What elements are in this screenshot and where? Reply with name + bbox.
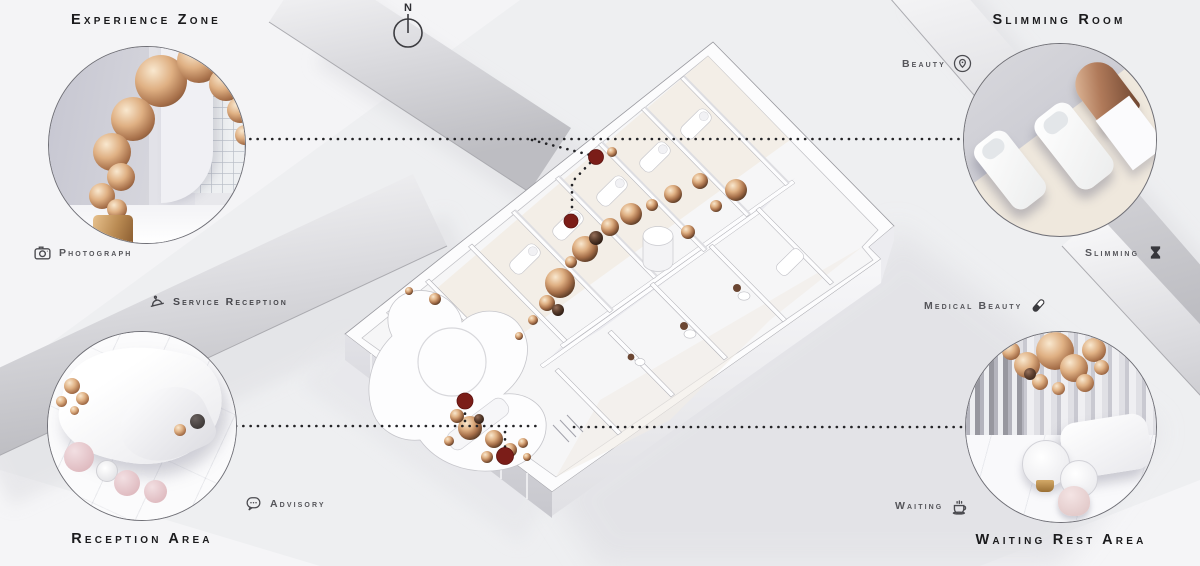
gold-sphere bbox=[76, 392, 89, 405]
pendant-sphere bbox=[1076, 374, 1094, 392]
beauty-label: Beauty bbox=[902, 54, 972, 73]
kettlebell bbox=[190, 414, 205, 429]
photograph-label: Photograph bbox=[33, 243, 132, 262]
slimming-label-text: Slimming bbox=[1085, 247, 1139, 259]
pink-stool bbox=[144, 480, 167, 503]
pendant-sphere-dark bbox=[1024, 368, 1036, 380]
cylinder-column bbox=[643, 227, 673, 272]
north-compass: N bbox=[384, 0, 432, 52]
compass-north-letter: N bbox=[404, 2, 412, 14]
gold-sphere bbox=[70, 406, 79, 415]
medical-beauty-label-text: Medical Beauty bbox=[924, 300, 1022, 312]
advisory-label: Advisory bbox=[244, 494, 326, 513]
pendant-sphere bbox=[1002, 342, 1020, 360]
experience-zone-photo bbox=[48, 46, 246, 244]
gold-pedestal bbox=[93, 215, 133, 244]
medical-beauty-label: Medical Beauty bbox=[924, 296, 1048, 315]
compass-icon: N bbox=[384, 0, 432, 52]
camera-icon bbox=[33, 243, 52, 262]
advisory-label-text: Advisory bbox=[270, 498, 326, 510]
gold-sphere bbox=[64, 378, 80, 394]
table-gold-base bbox=[1036, 480, 1054, 492]
slimming-room-title: Slimming Room bbox=[962, 12, 1156, 28]
marble-floor bbox=[49, 205, 245, 243]
copper-sphere bbox=[227, 97, 246, 123]
experience-zone-title: Experience Zone bbox=[47, 12, 245, 28]
bed-pillow bbox=[979, 135, 1008, 162]
pink-stool bbox=[64, 442, 94, 472]
waiting-rest-area-photo bbox=[965, 331, 1157, 523]
reception-area-photo bbox=[47, 331, 237, 521]
photograph-label-text: Photograph bbox=[59, 247, 132, 259]
pendant-sphere bbox=[1052, 382, 1065, 395]
pink-stool bbox=[114, 470, 140, 496]
hourglass-icon bbox=[1146, 243, 1165, 262]
gold-sphere bbox=[174, 424, 186, 436]
bed-pillow bbox=[1040, 108, 1071, 137]
waiting-label-text: Waiting bbox=[895, 500, 943, 512]
waiting-rest-area-title: Waiting Rest Area bbox=[962, 532, 1160, 548]
gold-sphere bbox=[56, 396, 67, 407]
bell-icon bbox=[147, 292, 166, 311]
speech-bubble-icon bbox=[244, 494, 263, 513]
capsule-icon bbox=[1029, 296, 1048, 315]
service-reception-label-text: Service Reception bbox=[173, 296, 288, 308]
pendant-sphere bbox=[1094, 360, 1109, 375]
slimming-label: Slimming bbox=[1085, 243, 1165, 262]
service-reception-label: Service Reception bbox=[147, 292, 288, 311]
pendant-sphere bbox=[1082, 338, 1106, 362]
beauty-label-text: Beauty bbox=[902, 58, 946, 70]
coffee-cup-icon bbox=[950, 496, 970, 516]
armchair bbox=[1058, 486, 1090, 516]
reception-area-title: Reception Area bbox=[46, 531, 238, 547]
axonometric-floor-plan-diagram: N Experience Zone Photograph bbox=[0, 0, 1200, 566]
slimming-room-photo bbox=[963, 43, 1157, 237]
waiting-label: Waiting bbox=[895, 496, 970, 516]
copper-sphere bbox=[209, 67, 243, 101]
